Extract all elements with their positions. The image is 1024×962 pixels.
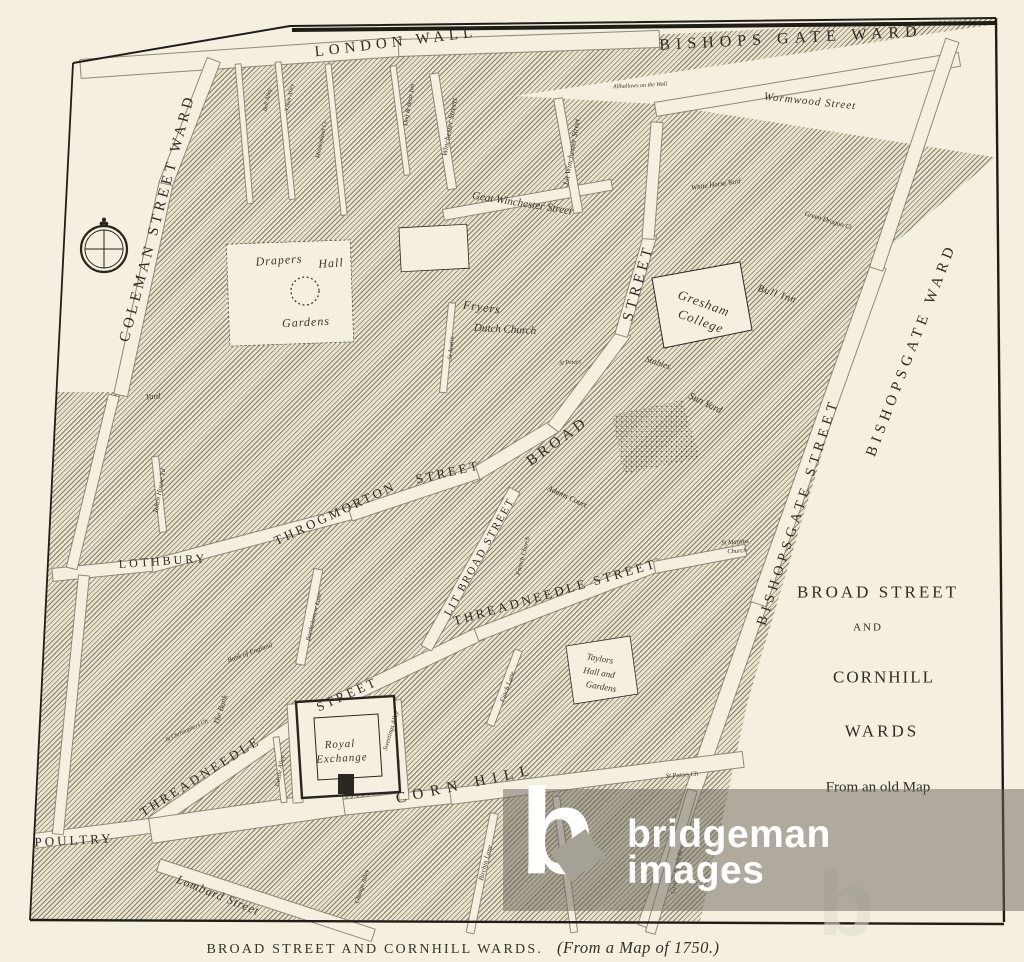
map-label: Yard xyxy=(145,392,160,401)
caption-source: (From a Map of 1750.) xyxy=(557,938,720,957)
map-label: Royal xyxy=(324,739,355,752)
map-label: AND xyxy=(853,623,883,634)
watermark-line1: bridgeman xyxy=(627,817,831,853)
scanned-map-page: { "caption": { "title": "BROAD STREET AN… xyxy=(0,0,1024,962)
watermark-wordmark: bridgeman images xyxy=(627,817,831,889)
map-label: Drapers xyxy=(255,252,303,267)
watermark-line2: images xyxy=(627,853,831,889)
map-label: Gardens xyxy=(282,315,330,329)
map-label: POULTRY xyxy=(34,831,114,848)
map-label: Church xyxy=(727,548,747,556)
caption: BROAD STREET AND CORNHILL WARDS. (From a… xyxy=(206,938,719,958)
caption-title: BROAD STREET AND CORNHILL WARDS. xyxy=(206,942,543,957)
map-label: CORNHILL xyxy=(833,669,935,686)
map-label: BROAD STREET xyxy=(797,584,959,601)
map-label: Hall xyxy=(318,256,344,270)
map-label: WARDS xyxy=(845,723,920,740)
